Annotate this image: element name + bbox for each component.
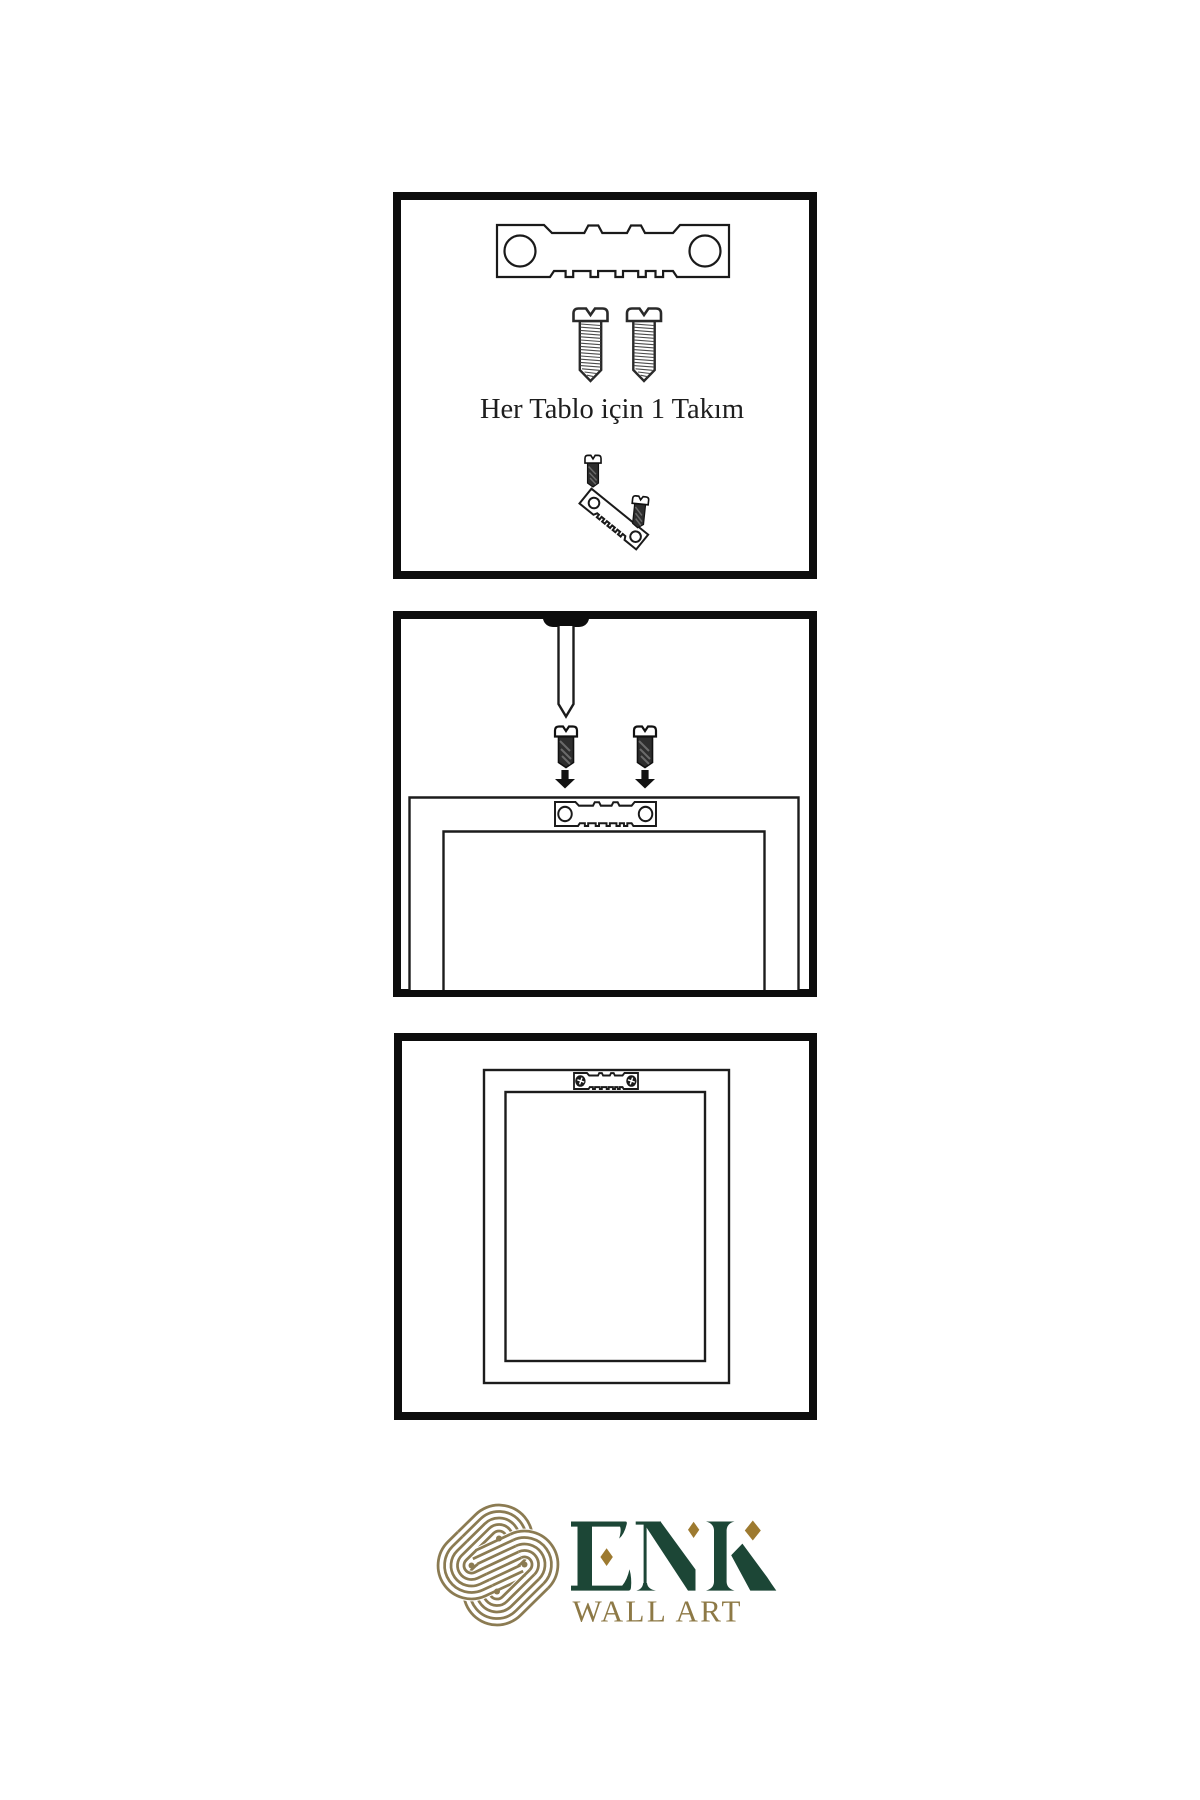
svg-text:Her Tablo için 1 Takım: Her Tablo için 1 Takım bbox=[480, 394, 744, 425]
svg-text:WALL ART: WALL ART bbox=[573, 1594, 743, 1629]
